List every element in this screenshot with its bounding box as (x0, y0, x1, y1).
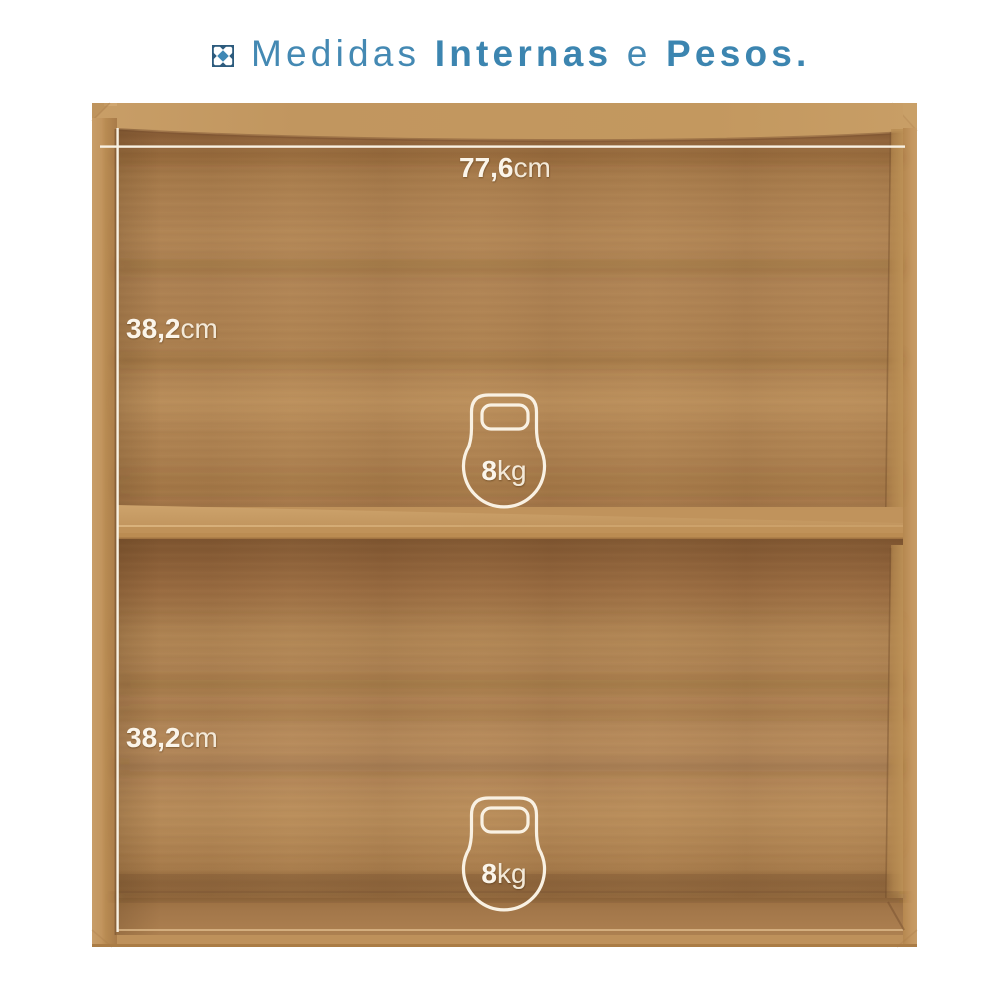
svg-text:38,2cm: 38,2cm (126, 313, 218, 344)
svg-text:Medidas Internas e Pesos.: Medidas Internas e Pesos. (251, 33, 811, 74)
svg-text:38,2cm: 38,2cm (126, 722, 218, 753)
svg-text:8kg: 8kg (481, 455, 526, 486)
svg-text:77,6cm: 77,6cm (459, 152, 551, 183)
svg-text:8kg: 8kg (481, 858, 526, 889)
